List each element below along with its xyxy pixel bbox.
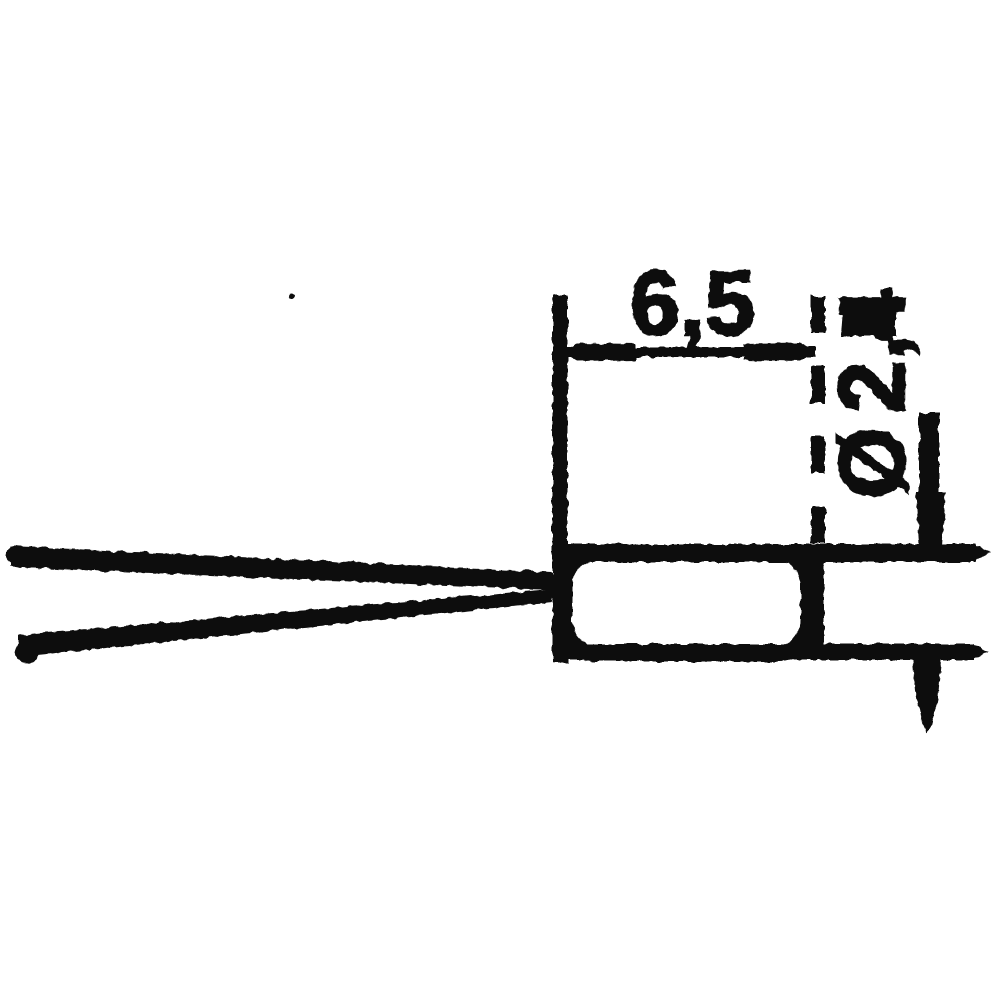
svg-text:6,5: 6,5 <box>630 254 755 354</box>
